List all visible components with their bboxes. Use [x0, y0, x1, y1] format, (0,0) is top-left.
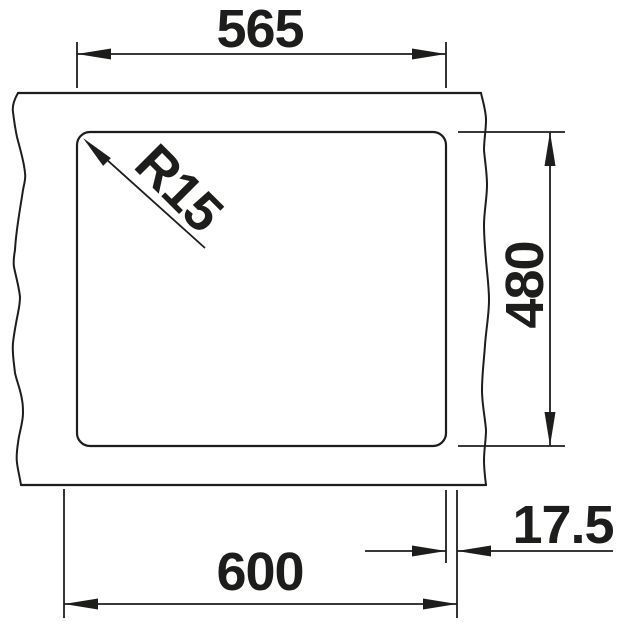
dim-565-label: 565 [216, 0, 303, 59]
dim-565-arrow-right [412, 49, 446, 60]
dimension-480: 480 [458, 132, 565, 446]
dim-480-label: 480 [495, 241, 555, 328]
dim-480-arrow-bottom [545, 412, 556, 446]
dim-480-arrow-top [545, 132, 556, 166]
dim-17-5-arrow-right [457, 546, 491, 557]
dim-17-5-arrow-left [412, 546, 446, 557]
dim-600-arrow-left [64, 599, 98, 610]
radius-callout-r15: R15 [83, 133, 234, 248]
countertop-right-break-line [481, 93, 489, 485]
radius-label: R15 [124, 133, 234, 243]
sink-cutout-drawing: 565 480 17.5 600 [0, 0, 625, 625]
dim-565-arrow-left [77, 49, 111, 60]
technical-drawing-canvas: 565 480 17.5 600 [0, 0, 625, 625]
countertop-left-break-line [13, 93, 26, 485]
dimension-565: 565 [77, 0, 446, 88]
dimension-17-5: 17.5 [365, 490, 614, 618]
radius-leader-arrowhead [83, 138, 111, 166]
dim-600-label: 600 [216, 542, 303, 602]
dimension-600: 600 [64, 489, 457, 618]
countertop-outline [13, 93, 489, 485]
dim-17-5-label: 17.5 [512, 495, 613, 555]
dim-600-arrow-right [423, 599, 457, 610]
